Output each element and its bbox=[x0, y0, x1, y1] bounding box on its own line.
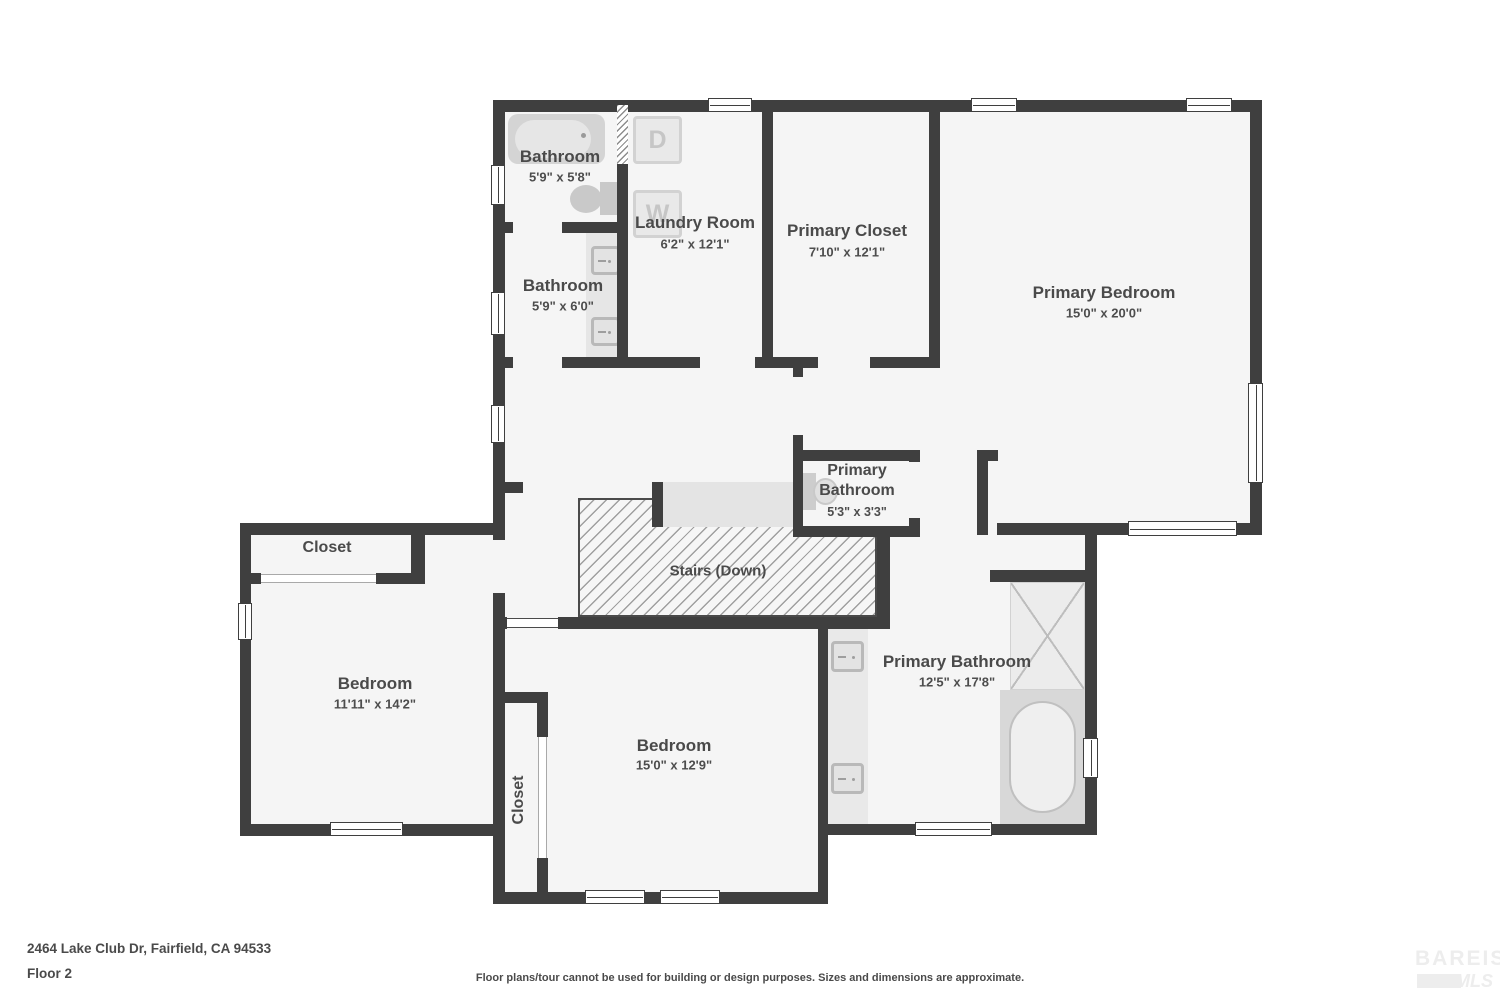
wall-segment bbox=[493, 100, 505, 165]
wall-segment bbox=[645, 892, 660, 904]
bareis-mls-logo: BAREIS® MLS bbox=[1415, 948, 1495, 990]
window-icon bbox=[330, 822, 403, 836]
wall-segment bbox=[793, 450, 920, 461]
pocket-door-icon bbox=[617, 105, 628, 164]
wall-segment bbox=[1250, 100, 1262, 383]
bedroom-bottom-door-opening bbox=[507, 618, 558, 628]
wall-segment bbox=[403, 824, 505, 836]
sink-icon bbox=[831, 641, 864, 672]
wall-segment bbox=[652, 482, 663, 527]
wall-segment bbox=[240, 824, 330, 836]
wall-segment bbox=[1250, 483, 1262, 535]
wall-segment bbox=[909, 518, 920, 537]
floor-label: Floor 2 bbox=[27, 966, 72, 981]
room-label-primary-bathroom-small: Primary Bathroom bbox=[804, 461, 910, 501]
closet-left-sliding-door bbox=[261, 574, 376, 583]
room-label-laundry: Laundry Room bbox=[635, 213, 755, 233]
room-dims-primary-bathroom-small: 5'3" x 3'3" bbox=[827, 505, 887, 519]
room-dims-primary-bathroom: 12'5" x 17'8" bbox=[919, 675, 995, 690]
wall-segment bbox=[493, 629, 505, 892]
window-icon bbox=[491, 292, 505, 335]
room-dims-bedroom-bottom: 15'0" x 12'9" bbox=[636, 758, 712, 773]
wall-segment bbox=[505, 482, 523, 493]
window-icon bbox=[585, 890, 645, 904]
window-icon bbox=[708, 98, 752, 112]
sink-icon bbox=[591, 317, 620, 346]
wall-segment bbox=[493, 205, 505, 292]
wall-segment bbox=[793, 435, 803, 537]
wall-segment bbox=[720, 892, 828, 904]
closet-bottom-sliding-door bbox=[538, 737, 547, 858]
disclaimer-text: Floor plans/tour cannot be used for buil… bbox=[476, 972, 1024, 984]
wall-segment bbox=[818, 617, 828, 903]
wall-segment bbox=[537, 858, 548, 903]
wall-segment bbox=[493, 617, 507, 629]
wall-segment bbox=[1085, 523, 1097, 738]
room-label-closet-bottom: Closet bbox=[510, 776, 528, 825]
wall-segment bbox=[240, 640, 251, 824]
wall-segment bbox=[562, 357, 700, 368]
wall-segment bbox=[909, 450, 920, 462]
wall-segment bbox=[558, 617, 890, 629]
room-dims-bathroom-mid: 5'9" x 6'0" bbox=[532, 299, 594, 314]
window-icon bbox=[1248, 383, 1263, 483]
room-label-primary-bathroom: Primary Bathroom bbox=[883, 652, 1031, 672]
wall-segment bbox=[240, 523, 505, 535]
room-label-bedroom-left: Bedroom bbox=[338, 674, 413, 694]
shower-icon bbox=[1010, 582, 1085, 690]
wall-segment bbox=[977, 450, 988, 535]
bathtub-icon bbox=[1009, 701, 1076, 813]
floor-plan: D W Bathroom 5'9" x 5'8" Bathroom 5'9" x… bbox=[0, 0, 1500, 1000]
wall-segment bbox=[493, 593, 505, 617]
window-icon bbox=[1083, 738, 1098, 778]
logo-line1: BAREIS® bbox=[1415, 948, 1495, 969]
wall-segment bbox=[818, 824, 915, 835]
wall-segment bbox=[992, 824, 1097, 835]
wall-segment bbox=[755, 357, 818, 368]
window-icon bbox=[491, 405, 505, 443]
logo-bareis-text: BAREIS bbox=[1415, 947, 1500, 970]
room-label-bedroom-bottom: Bedroom bbox=[637, 736, 712, 756]
wall-segment bbox=[250, 573, 261, 584]
room-label-bathroom-top: Bathroom bbox=[520, 147, 600, 167]
room-dims-bedroom-left: 11'11" x 14'2" bbox=[334, 697, 416, 712]
wall-segment bbox=[793, 368, 803, 377]
toilet-tank-icon bbox=[600, 182, 618, 215]
room-dims-bathroom-top: 5'9" x 5'8" bbox=[529, 170, 591, 185]
wall-segment bbox=[537, 692, 548, 737]
wall-segment bbox=[411, 523, 425, 584]
stair-landing bbox=[660, 482, 793, 527]
wall-segment bbox=[997, 523, 1128, 535]
wall-segment bbox=[1085, 778, 1097, 835]
room-label-primary-closet: Primary Closet bbox=[787, 221, 907, 241]
window-icon bbox=[660, 890, 720, 904]
sink-icon bbox=[591, 246, 620, 275]
window-icon bbox=[971, 98, 1017, 112]
bathtub-faucet-icon bbox=[581, 133, 586, 138]
window-icon bbox=[491, 165, 505, 205]
room-label-stairs: Stairs (Down) bbox=[670, 563, 767, 580]
wall-segment bbox=[493, 443, 505, 540]
logo-line2: MLS bbox=[1415, 972, 1495, 990]
window-icon bbox=[1186, 98, 1232, 112]
wall-segment bbox=[496, 100, 1262, 112]
dryer-letter: D bbox=[648, 126, 666, 155]
room-dims-laundry: 6'2" x 12'1" bbox=[660, 237, 729, 252]
room-label-closet-left: Closet bbox=[303, 539, 352, 557]
room-dims-primary-closet: 7'10" x 12'1" bbox=[809, 245, 885, 260]
room-dims-primary-bedroom: 15'0" x 20'0" bbox=[1066, 306, 1142, 321]
wall-segment bbox=[762, 100, 773, 357]
toilet-bowl-icon bbox=[570, 185, 602, 213]
wall-segment bbox=[990, 570, 1097, 582]
wall-segment bbox=[877, 526, 890, 629]
room-label-primary-bedroom: Primary Bedroom bbox=[1033, 283, 1176, 303]
dryer-icon: D bbox=[633, 116, 682, 164]
sink-icon bbox=[831, 763, 864, 794]
wall-segment bbox=[493, 335, 505, 405]
address-text: 2464 Lake Club Dr, Fairfield, CA 94533 bbox=[27, 941, 271, 956]
wall-segment bbox=[929, 100, 940, 360]
wall-segment bbox=[793, 526, 920, 537]
window-icon bbox=[1128, 521, 1237, 536]
logo-mls-text: MLS bbox=[1455, 971, 1493, 991]
wall-segment bbox=[240, 523, 251, 603]
window-icon bbox=[915, 822, 992, 836]
room-label-bathroom-mid: Bathroom bbox=[523, 276, 603, 296]
window-icon bbox=[238, 603, 252, 640]
